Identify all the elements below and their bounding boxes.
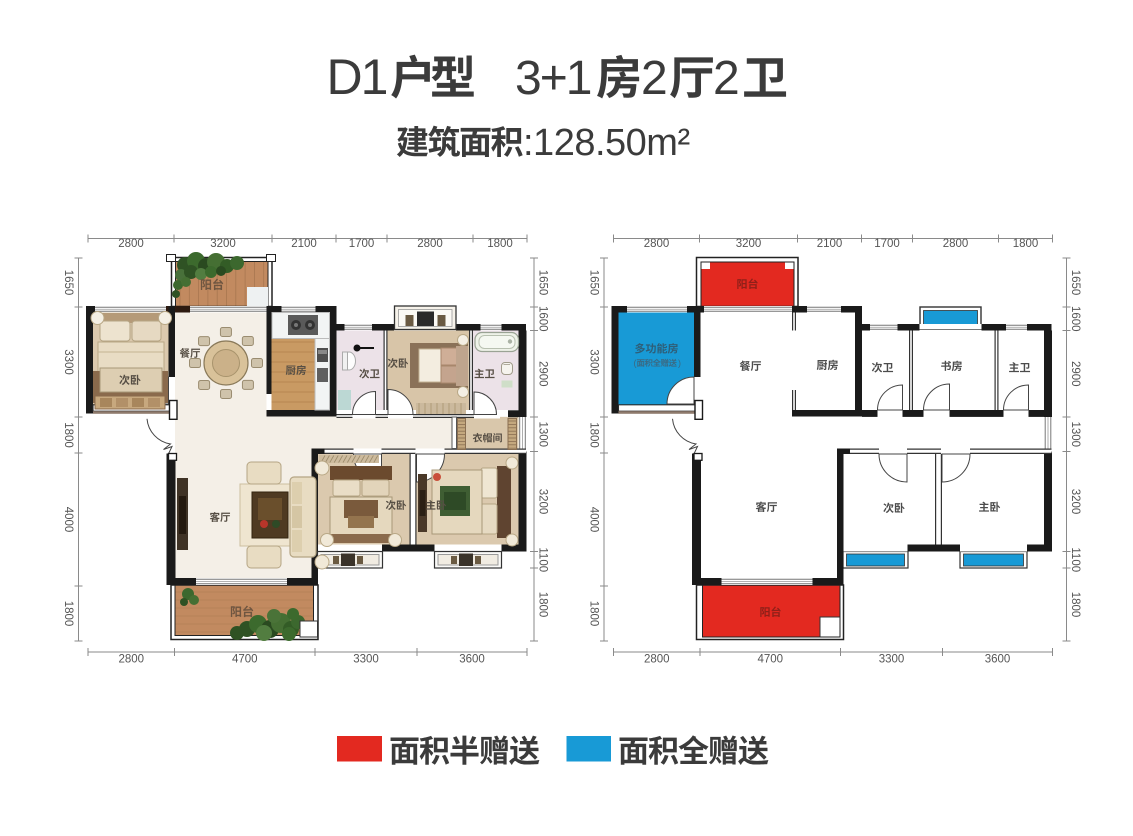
svg-text:2800: 2800 — [417, 238, 443, 250]
svg-text:1600: 1600 — [1069, 306, 1081, 332]
svg-text:4700: 4700 — [757, 654, 783, 666]
svg-text:4700: 4700 — [232, 654, 258, 666]
svg-text:1650: 1650 — [1069, 270, 1081, 296]
svg-text:2800: 2800 — [943, 238, 969, 250]
svg-text:3+1: 3+1 — [515, 52, 591, 105]
svg-text:3300: 3300 — [62, 349, 74, 375]
svg-text:1650: 1650 — [537, 270, 549, 296]
svg-text:1800: 1800 — [487, 238, 513, 250]
svg-text:1800: 1800 — [1013, 238, 1039, 250]
svg-text:4000: 4000 — [588, 507, 600, 533]
svg-text:3600: 3600 — [985, 654, 1011, 666]
svg-text:1800: 1800 — [588, 422, 600, 448]
svg-text:2100: 2100 — [291, 238, 317, 250]
svg-text:1800: 1800 — [1069, 592, 1081, 618]
svg-text:2: 2 — [641, 52, 668, 105]
svg-text:1600: 1600 — [537, 306, 549, 332]
svg-text:2800: 2800 — [118, 238, 144, 250]
svg-text:1100: 1100 — [1069, 547, 1081, 572]
svg-text:1800: 1800 — [62, 422, 74, 448]
svg-text::128.50m²: :128.50m² — [523, 122, 690, 164]
svg-text:3300: 3300 — [353, 654, 379, 666]
svg-text:1800: 1800 — [537, 592, 549, 618]
svg-text:1300: 1300 — [1069, 421, 1081, 447]
svg-text:3200: 3200 — [1069, 489, 1081, 515]
svg-text:3200: 3200 — [537, 489, 549, 515]
svg-text:): ) — [678, 358, 681, 368]
svg-text:1700: 1700 — [349, 238, 375, 250]
svg-text:(: ( — [634, 358, 637, 368]
svg-text:2: 2 — [713, 52, 740, 105]
svg-text:2800: 2800 — [644, 238, 670, 250]
svg-text:3200: 3200 — [736, 238, 762, 250]
svg-text:3300: 3300 — [879, 654, 905, 666]
svg-text:4000: 4000 — [62, 507, 74, 533]
svg-text:3600: 3600 — [459, 654, 485, 666]
svg-text:2100: 2100 — [817, 238, 843, 250]
svg-text:2800: 2800 — [118, 654, 144, 666]
svg-text:1800: 1800 — [62, 601, 74, 627]
svg-text:1300: 1300 — [537, 421, 549, 447]
svg-text:1650: 1650 — [62, 270, 74, 296]
svg-text:3300: 3300 — [588, 349, 600, 375]
svg-text:1100: 1100 — [537, 547, 549, 572]
svg-text:D1: D1 — [327, 49, 387, 105]
svg-text:2800: 2800 — [644, 654, 670, 666]
svg-text:3200: 3200 — [210, 238, 236, 250]
svg-text:1700: 1700 — [874, 238, 900, 250]
svg-text:1800: 1800 — [588, 601, 600, 627]
svg-text:2900: 2900 — [537, 361, 549, 387]
svg-text:2900: 2900 — [1069, 361, 1081, 387]
svg-text:1650: 1650 — [588, 270, 600, 296]
